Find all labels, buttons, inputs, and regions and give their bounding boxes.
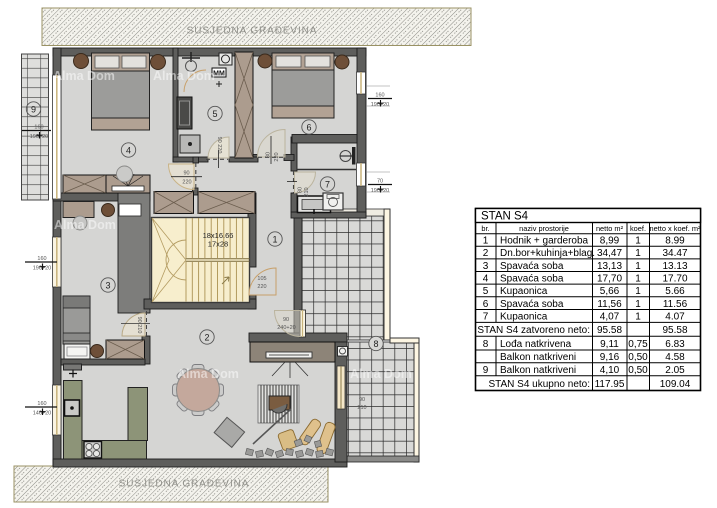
svg-text:0,75: 0,75	[628, 339, 648, 350]
svg-text:5.66: 5.66	[665, 286, 685, 297]
svg-text:Balkon natkriveni: Balkon natkriveni	[500, 365, 576, 376]
svg-text:Hodnik + garderoba: Hodnik + garderoba	[500, 236, 589, 247]
svg-text:4.58: 4.58	[665, 352, 685, 363]
svg-text:8.99: 8.99	[665, 236, 685, 247]
svg-text:4: 4	[483, 273, 489, 284]
svg-text:95.58: 95.58	[597, 325, 622, 336]
svg-text:1: 1	[635, 286, 641, 297]
svg-text:koef.: koef.	[630, 224, 646, 233]
svg-text:Lođa natkrivena: Lođa natkrivena	[500, 339, 572, 350]
svg-text:STAN S4 zatvoreno neto:: STAN S4 zatvoreno neto:	[477, 325, 590, 336]
svg-text:2.05: 2.05	[665, 365, 685, 376]
svg-text:1: 1	[635, 312, 641, 323]
svg-text:9: 9	[483, 365, 489, 376]
svg-text:netto x koef. m²: netto x koef. m²	[650, 224, 701, 233]
svg-text:0,50: 0,50	[628, 365, 648, 376]
svg-text:13.13: 13.13	[662, 261, 687, 272]
svg-text:117.95: 117.95	[595, 379, 625, 390]
svg-text:5,66: 5,66	[600, 286, 620, 297]
svg-text:br.: br.	[481, 224, 489, 233]
svg-text:8: 8	[483, 339, 489, 350]
svg-text:5: 5	[483, 286, 489, 297]
svg-text:6: 6	[483, 299, 489, 310]
svg-text:11,56: 11,56	[597, 299, 622, 310]
svg-text:Balkon natkriveni: Balkon natkriveni	[500, 352, 576, 363]
svg-text:3: 3	[483, 261, 489, 272]
svg-text:Spavaća soba: Spavaća soba	[500, 299, 564, 310]
svg-text:9,11: 9,11	[600, 339, 619, 350]
svg-text:34.47: 34.47	[662, 248, 687, 259]
svg-text:17.70: 17.70	[662, 273, 687, 284]
svg-text:11.56: 11.56	[663, 299, 688, 310]
svg-text:STAN S4 ukupno neto:: STAN S4 ukupno neto:	[488, 379, 590, 390]
svg-text:STAN S4: STAN S4	[481, 211, 529, 223]
svg-text:4.07: 4.07	[665, 312, 685, 323]
svg-text:4,10: 4,10	[600, 365, 620, 376]
svg-text:4,07: 4,07	[600, 312, 620, 323]
svg-text:8,99: 8,99	[600, 236, 620, 247]
svg-text:2: 2	[483, 248, 489, 259]
svg-text:1: 1	[635, 299, 641, 310]
svg-text:13,13: 13,13	[597, 261, 622, 272]
svg-text:34,47: 34,47	[597, 248, 622, 259]
svg-text:Spavaća soba: Spavaća soba	[500, 273, 564, 284]
svg-text:netto m²: netto m²	[596, 224, 624, 233]
svg-text:Spavaća soba: Spavaća soba	[500, 261, 564, 272]
svg-text:naziv prostorije: naziv prostorije	[519, 224, 569, 233]
svg-text:0,50: 0,50	[628, 352, 648, 363]
svg-text:95.58: 95.58	[662, 325, 687, 336]
svg-text:1: 1	[635, 248, 641, 259]
svg-text:1: 1	[635, 236, 641, 247]
svg-text:Dn.bor+kuhinja+blag.: Dn.bor+kuhinja+blag.	[500, 248, 595, 259]
svg-text:1: 1	[483, 236, 489, 247]
svg-text:Kupaonica: Kupaonica	[500, 286, 548, 297]
svg-text:1: 1	[635, 273, 641, 284]
svg-text:6.83: 6.83	[665, 339, 685, 350]
svg-text:9,16: 9,16	[600, 352, 620, 363]
svg-text:109.04: 109.04	[660, 379, 691, 390]
svg-text:17,70: 17,70	[597, 273, 622, 284]
svg-text:7: 7	[483, 312, 489, 323]
svg-text:1: 1	[635, 261, 641, 272]
svg-text:Kupaonica: Kupaonica	[500, 312, 548, 323]
